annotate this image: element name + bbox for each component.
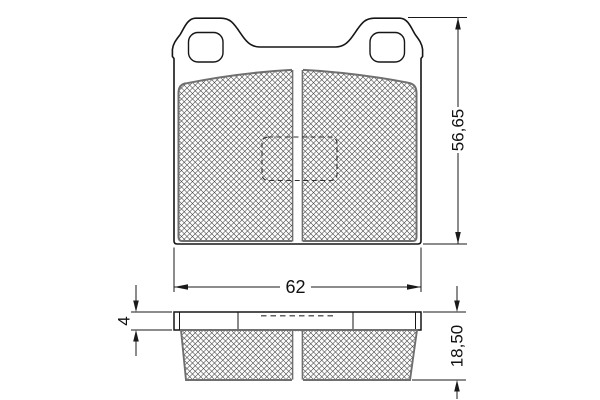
dimension-overall-width: 62 [174, 248, 421, 298]
brake-pad-drawing: 56,65 62 4 [0, 0, 600, 400]
dimension-backplate-thickness: 4 [115, 285, 173, 356]
dim-backplate-label: 4 [115, 316, 134, 325]
arrowhead-up [455, 18, 461, 30]
arrowhead-down [455, 232, 461, 244]
arrowhead-left [174, 284, 188, 290]
profile-view [174, 312, 421, 382]
ear-hole-left [189, 33, 224, 63]
profile-center-slot [292, 331, 303, 381]
backplate-strip [174, 312, 421, 330]
arrowhead-up [454, 380, 460, 392]
arrowhead-down [454, 301, 460, 313]
dim-height-label: 56,65 [449, 109, 468, 152]
arrowhead-right [407, 284, 421, 290]
center-slot [292, 62, 303, 243]
dim-total-label: 18,50 [448, 325, 467, 368]
dimension-total-thickness: 18,50 [412, 286, 467, 399]
arrowhead-down [133, 301, 139, 313]
technical-drawing-page: 56,65 62 4 [0, 0, 600, 400]
arrowhead-up [133, 330, 139, 342]
dim-width-label: 62 [285, 277, 305, 297]
front-view [172, 18, 422, 244]
ear-hole-right [370, 33, 405, 63]
